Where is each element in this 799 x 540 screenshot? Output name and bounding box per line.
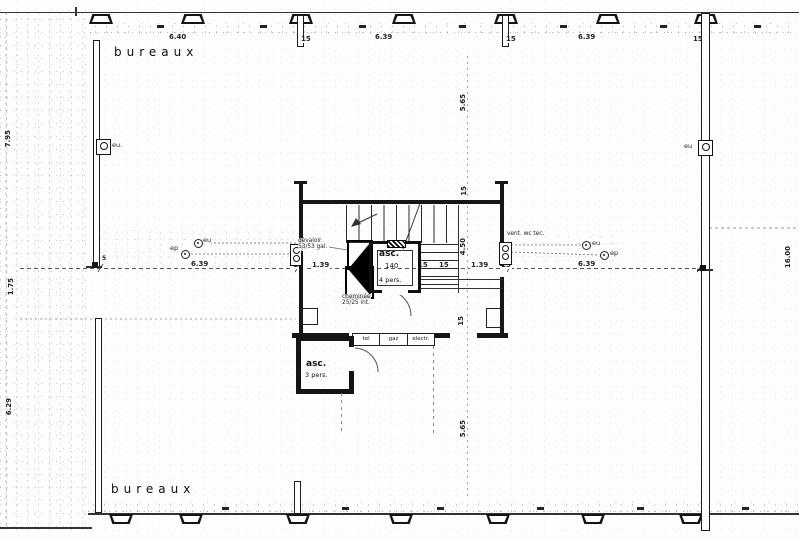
- core-wall-stub-right: [500, 182, 504, 204]
- column-icon: [596, 14, 620, 24]
- wall-drain-left-label: eu.: [112, 142, 122, 149]
- wall-joint-label: 5: [101, 256, 107, 262]
- vent-wc-label: vent. wc tec.: [507, 231, 544, 238]
- column-icon: [392, 14, 416, 24]
- stair-return-flight: [421, 244, 459, 292]
- drain-dot-icon: [100, 142, 108, 150]
- dim-top-2: 15: [300, 36, 312, 43]
- mullion-tick: [537, 507, 544, 510]
- mullion-tick: [222, 507, 229, 510]
- column-icon: [109, 514, 133, 524]
- dim-left-1: 7.95: [4, 130, 13, 147]
- dim-top-5: 6.39: [577, 34, 596, 41]
- dim-center-v-5: 5.65: [459, 420, 468, 437]
- core-wall-top: [302, 200, 503, 204]
- vent-duct-right: [499, 242, 512, 265]
- core-wall-cap-left: [294, 181, 307, 184]
- utility-tel: tel: [353, 334, 380, 345]
- wall-joint-right-mark: [700, 265, 706, 271]
- top-left-tick: [75, 7, 77, 16]
- column-icon: [89, 14, 113, 24]
- column-icon: [389, 514, 413, 524]
- mullion-tick: [742, 507, 749, 510]
- construction-line-1: [341, 393, 342, 433]
- drain-symbol-eu-right-icon: [582, 241, 591, 250]
- mullion-tick: [560, 25, 567, 28]
- drain-box-right: [698, 140, 713, 156]
- elevator-door-opening: [382, 289, 408, 295]
- pillar-right: [486, 308, 503, 328]
- column-icon: [181, 14, 205, 24]
- dim-center-v-1: 5.65: [459, 94, 468, 111]
- column-icon: [581, 514, 605, 524]
- chimney-label-line2: 25/25 int.: [342, 300, 370, 307]
- bottom-left-line: [0, 527, 92, 529]
- dim-top-4: 15: [505, 36, 517, 43]
- mullion-tick: [437, 507, 444, 510]
- dim-mid-3: 1.39: [311, 262, 330, 269]
- drain-box-left: [96, 139, 111, 155]
- top-boundary-line: [0, 12, 799, 13]
- dim-center-v-2: 15: [460, 186, 469, 196]
- duct-dot-icon: [293, 255, 300, 262]
- mullion-tick: [754, 25, 761, 28]
- dim-center-v-4: 15: [457, 316, 466, 326]
- dim-left-3: 6.29: [5, 398, 14, 415]
- dim-right-total: 16.00: [784, 246, 793, 268]
- elevator-service-door-opening: [349, 347, 355, 371]
- column-icon: [286, 514, 310, 524]
- dim-mid-6: 1.39: [470, 262, 489, 269]
- utility-electr: electr.: [408, 334, 434, 345]
- wall-left-lower: [95, 318, 102, 513]
- left-margin-line: [6, 12, 7, 530]
- dim-left-2: 1.75: [7, 278, 16, 295]
- room-label-bureaux-top: bureaux: [114, 45, 198, 59]
- drain-symbol-ep-left-icon: [181, 250, 190, 259]
- elevator-main-width: 140: [385, 263, 398, 270]
- dim-center-v-3: 4.50: [459, 238, 468, 255]
- drain-ep-right-label: ep: [610, 250, 618, 257]
- column-icon: [486, 514, 510, 524]
- duct-dot-icon: [502, 253, 509, 260]
- stair-landing-line-2: [421, 288, 503, 289]
- drain-symbol-ep-right-icon: [600, 251, 609, 260]
- core-wall-cap-right: [495, 181, 508, 184]
- mullion-tick: [157, 25, 164, 28]
- scan-noise-left-strip: [0, 10, 90, 532]
- mullion-tick: [260, 25, 267, 28]
- column-icon: [179, 514, 203, 524]
- floor-plan: 6.40 15 6.39 15 6.39 15 eu. eu 5 bureaux…: [0, 0, 799, 540]
- duct-dot-icon: [502, 245, 509, 252]
- mullion-tick: [342, 507, 349, 510]
- wall-drain-right-label: eu: [684, 143, 692, 150]
- elevator-service-label: asc.: [306, 360, 326, 369]
- mullion-tick: [459, 25, 466, 28]
- chute-label-line2: 53/53 gal.: [298, 244, 327, 251]
- drain-eu-right-label: eu: [592, 240, 600, 247]
- elevator-main-capacity: 4 pers.: [379, 277, 401, 284]
- core-wall-stub-left: [299, 182, 303, 204]
- construction-line-2: [433, 346, 434, 433]
- wall-right: [701, 13, 710, 531]
- mullion-tick: [637, 507, 644, 510]
- mullion-tick: [359, 25, 366, 28]
- drain-symbol-eu-left-icon: [194, 239, 203, 248]
- column-post-bottom: [294, 481, 301, 514]
- elevator-door-hatch: [387, 240, 406, 248]
- scan-noise-top-band: [90, 23, 796, 33]
- stair-upper-flight: [346, 205, 459, 243]
- mullion-tick: [660, 25, 667, 28]
- elevator-main-label: asc.: [379, 250, 399, 259]
- room-label-bureaux-bottom: bureaux: [111, 482, 195, 496]
- dim-mid-1: 6.39: [190, 261, 209, 268]
- utility-closets: tel gaz electr.: [352, 333, 435, 346]
- wall-joint-left-mark: [92, 262, 98, 268]
- drain-ep-left-label: ep: [170, 245, 178, 252]
- dim-top-1: 6.40: [168, 34, 187, 41]
- column-icon: [679, 514, 703, 524]
- dim-top-3: 6.39: [374, 34, 393, 41]
- elevator-service-capacity: 3 pers.: [305, 372, 327, 379]
- stair-landing-line-1: [421, 279, 503, 280]
- drain-dot-icon: [702, 143, 710, 151]
- pillar-left: [301, 308, 318, 325]
- core-wall-bottom-right: [477, 333, 508, 338]
- utility-gaz: gaz: [380, 334, 407, 345]
- dim-mid-8: 6.39: [577, 261, 596, 268]
- drain-eu-left-label: eu: [203, 237, 211, 244]
